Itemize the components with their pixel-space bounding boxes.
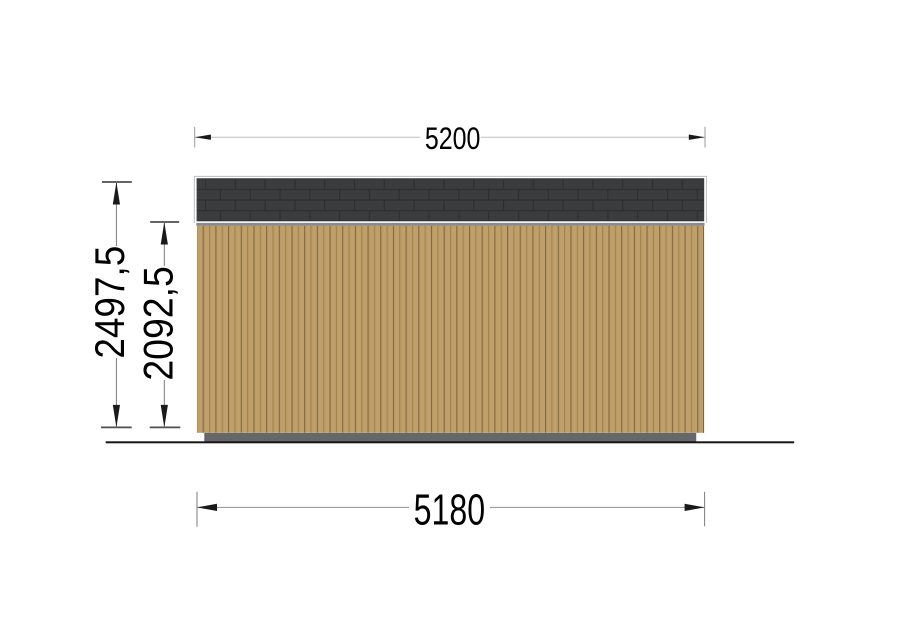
svg-text:5180: 5180 [414, 485, 485, 534]
svg-text:2497,5: 2497,5 [87, 246, 134, 359]
svg-text:5200: 5200 [425, 121, 481, 157]
svg-text:2092,5: 2092,5 [136, 266, 182, 381]
